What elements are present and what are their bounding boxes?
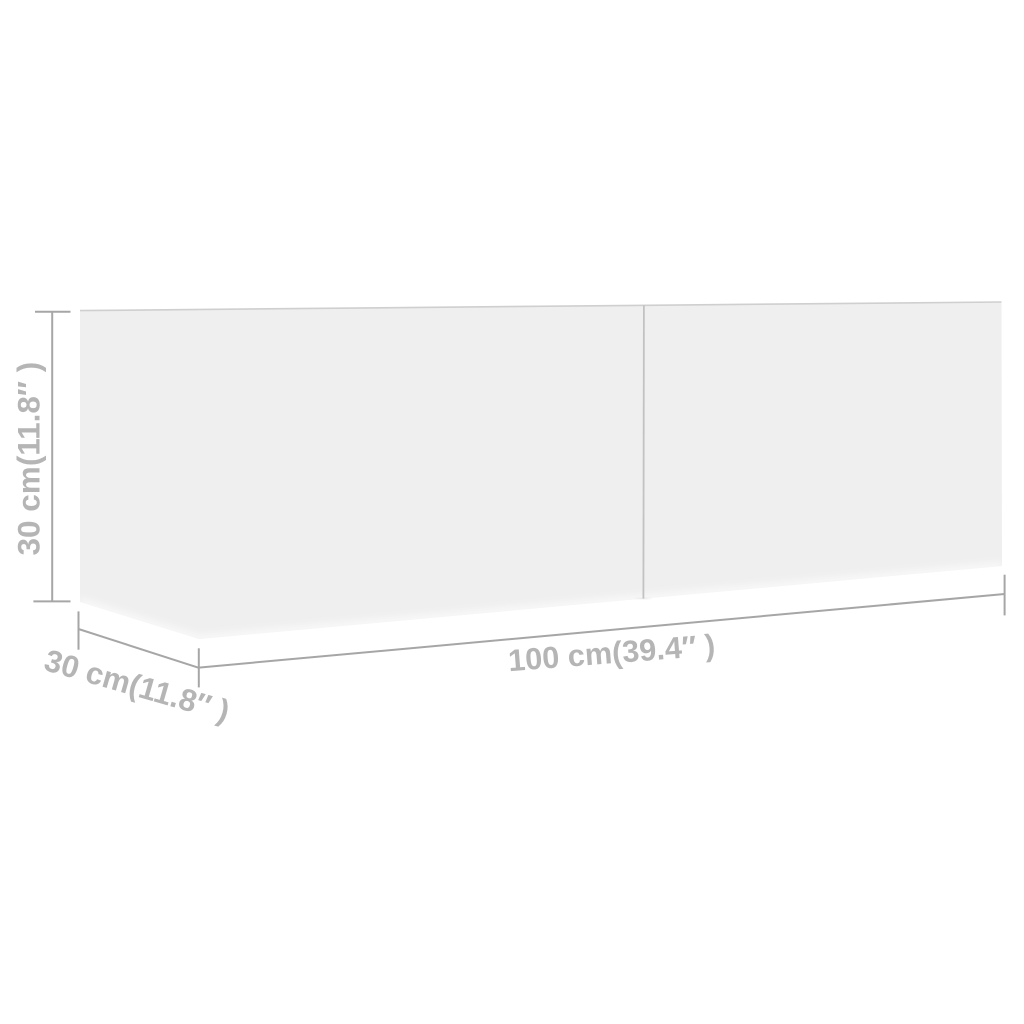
- svg-text:30 cm(11.8″ ): 30 cm(11.8″ ): [11, 362, 47, 556]
